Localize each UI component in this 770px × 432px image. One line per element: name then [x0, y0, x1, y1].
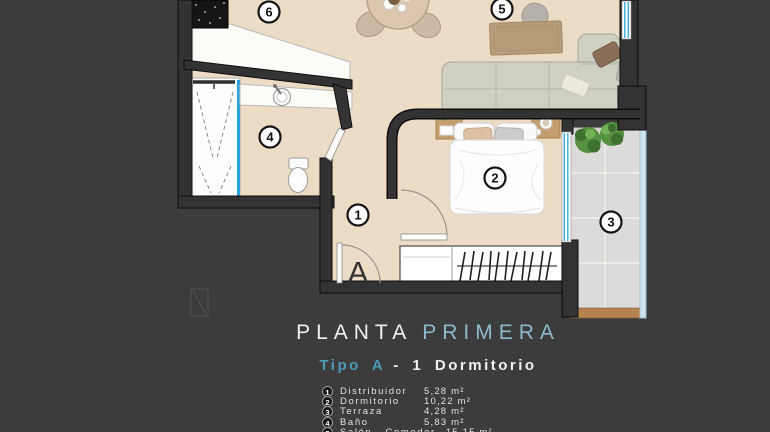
legend-room-name: Distribuidor: [340, 386, 414, 397]
floor-plan-page: A 1 2 3 4 5 6: [0, 0, 770, 432]
legend-row: 1 Distribuidor 5,28 m²: [322, 386, 493, 396]
legend-row: 5 Salón - Comedor 15,15 m²: [322, 428, 493, 432]
legend-room-name: Dormitorio: [340, 396, 414, 407]
room-badge-5: 5: [492, 0, 513, 20]
floor-plan: A 1 2 3 4 5 6: [0, 0, 770, 322]
room-legend: 1 Distribuidor 5,28 m² 2 Dormitorio 10,2…: [322, 386, 493, 432]
unit-type-rest: - 1 Dormitorio: [393, 357, 536, 374]
legend-number-badge: 4: [322, 417, 333, 428]
legend-number-badge: 5: [322, 427, 333, 432]
rug: [489, 21, 562, 55]
bedroom-window: [562, 132, 571, 242]
kitchen-hob: [188, 0, 228, 28]
svg-text:2: 2: [491, 171, 498, 186]
room-badge-4: 4: [260, 127, 281, 148]
living-window: [622, 1, 631, 39]
unit-type-accent: Tipo A: [319, 357, 385, 374]
svg-text:1: 1: [354, 208, 361, 223]
legend-room-area: 4,28 m²: [424, 406, 465, 417]
room-badge-6: 6: [259, 2, 280, 23]
shower: [190, 78, 240, 200]
entrance-label: A: [348, 255, 369, 290]
room-badge-1: 1: [348, 205, 369, 226]
glass-railing: [640, 128, 646, 318]
svg-text:6: 6: [265, 5, 272, 20]
terrace-wood-edge: [571, 308, 646, 318]
legend-room-area: 15,15 m²: [446, 427, 493, 432]
legend-row: 2 Dormitorio 10,22 m²: [322, 396, 493, 406]
legend-room-name: Salón - Comedor: [340, 427, 436, 432]
page-title-floor-accent: PRIMERA: [422, 321, 560, 344]
legend-number-badge: 3: [322, 406, 333, 417]
legend-number-badge: 1: [322, 386, 333, 397]
legend-room-area: 5,28 m²: [424, 386, 465, 397]
page-title-floor: PLANTA: [296, 321, 412, 344]
unit-type-subtitle: Tipo A- 1 Dormitorio: [86, 357, 770, 374]
page-title: PLANTAPRIMERA: [86, 322, 770, 344]
legend-room-name: Baño: [340, 417, 414, 428]
legend-room-area: 10,22 m²: [424, 396, 471, 407]
room-badge-3: 3: [601, 212, 622, 233]
wardrobe: [400, 246, 563, 284]
svg-text:4: 4: [266, 130, 274, 145]
legend-room-name: Terraza: [340, 406, 414, 417]
title-block: PLANTAPRIMERA Tipo A- 1 Dormitorio: [86, 322, 770, 374]
legend-room-area: 5,83 m²: [424, 417, 465, 428]
svg-text:3: 3: [607, 215, 614, 230]
room-badge-2: 2: [485, 168, 506, 189]
legend-number-badge: 2: [322, 396, 333, 407]
brand-mark: [191, 289, 208, 316]
legend-row: 4 Baño 5,83 m²: [322, 417, 493, 427]
svg-text:5: 5: [498, 2, 505, 17]
legend-row: 3 Terraza 4,28 m²: [322, 407, 493, 417]
toilet: [289, 158, 309, 193]
